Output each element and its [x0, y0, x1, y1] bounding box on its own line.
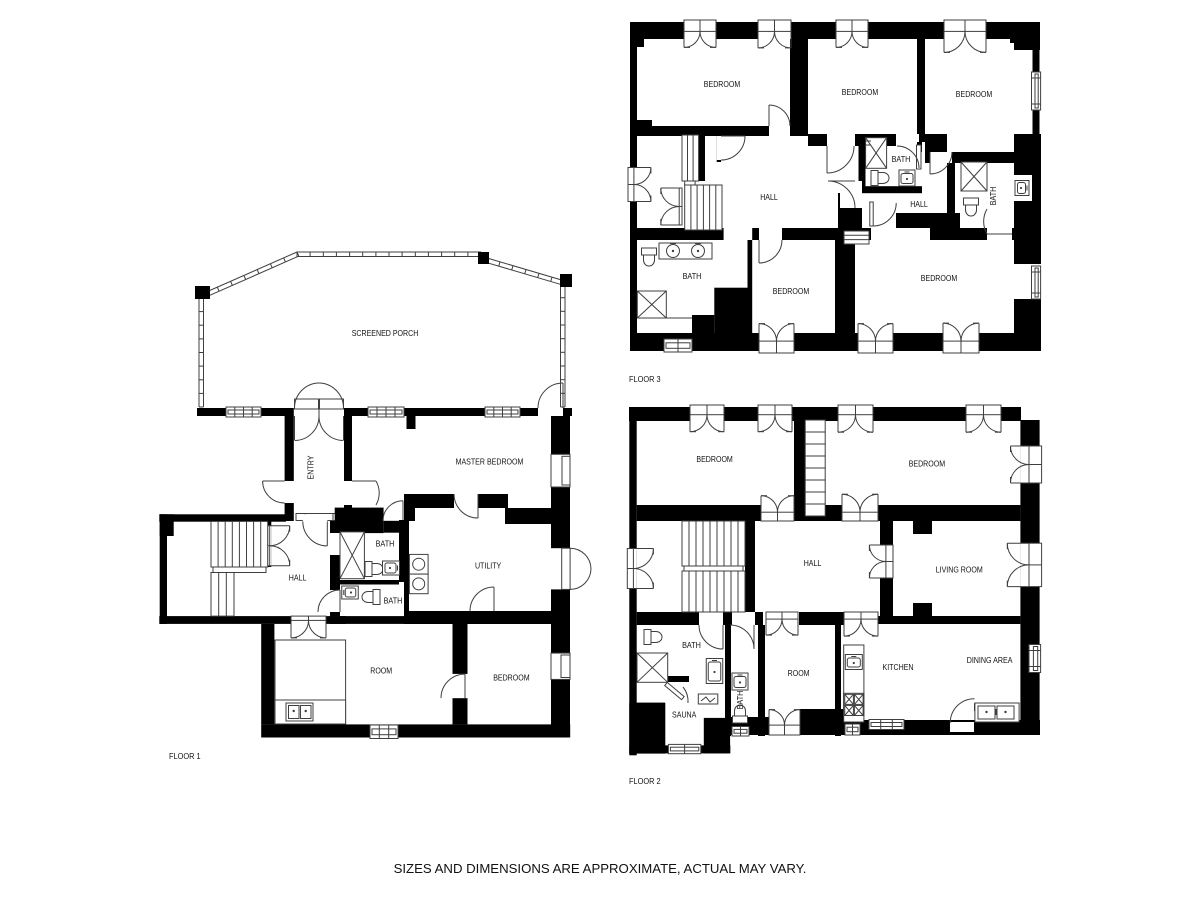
svg-text:BATH: BATH — [683, 272, 702, 281]
svg-text:BEDROOM: BEDROOM — [704, 80, 741, 89]
svg-text:BEDROOM: BEDROOM — [696, 455, 733, 464]
svg-text:HALL: HALL — [289, 574, 307, 583]
svg-text:HALL: HALL — [910, 200, 928, 209]
svg-text:BATH: BATH — [892, 155, 911, 164]
svg-text:BEDROOM: BEDROOM — [909, 460, 946, 469]
svg-text:HALL: HALL — [760, 193, 778, 202]
svg-text:ROOM: ROOM — [788, 669, 810, 678]
svg-text:BATH: BATH — [682, 641, 701, 650]
svg-text:FLOOR 2: FLOOR 2 — [629, 777, 661, 786]
svg-text:MASTER BEDROOM: MASTER BEDROOM — [456, 458, 524, 467]
svg-text:HALL: HALL — [804, 559, 822, 568]
svg-text:KITCHEN: KITCHEN — [883, 663, 914, 672]
svg-text:BEDROOM: BEDROOM — [493, 674, 530, 683]
svg-text:LIVING ROOM: LIVING ROOM — [936, 566, 983, 575]
svg-text:BEDROOM: BEDROOM — [956, 90, 993, 99]
svg-text:ROOM: ROOM — [370, 667, 392, 676]
svg-text:ENTRY: ENTRY — [307, 455, 316, 479]
svg-text:BEDROOM: BEDROOM — [921, 274, 958, 283]
svg-text:FLOOR 1: FLOOR 1 — [169, 752, 201, 761]
svg-text:BEDROOM: BEDROOM — [773, 287, 810, 296]
svg-text:BATH: BATH — [736, 691, 745, 710]
svg-text:FLOOR 3: FLOOR 3 — [629, 375, 661, 384]
svg-text:SAUNA: SAUNA — [672, 711, 697, 720]
svg-text:SIZES AND DIMENSIONS ARE APPRO: SIZES AND DIMENSIONS ARE APPROXIMATE, AC… — [394, 861, 807, 876]
svg-text:UTILITY: UTILITY — [475, 562, 502, 571]
svg-text:BATH: BATH — [384, 597, 403, 606]
svg-text:BATH: BATH — [376, 540, 395, 549]
svg-text:BEDROOM: BEDROOM — [842, 88, 879, 97]
svg-text:BATH: BATH — [989, 187, 998, 206]
svg-text:SCREENED PORCH: SCREENED PORCH — [352, 329, 419, 338]
svg-text:DINING AREA: DINING AREA — [967, 656, 1013, 665]
